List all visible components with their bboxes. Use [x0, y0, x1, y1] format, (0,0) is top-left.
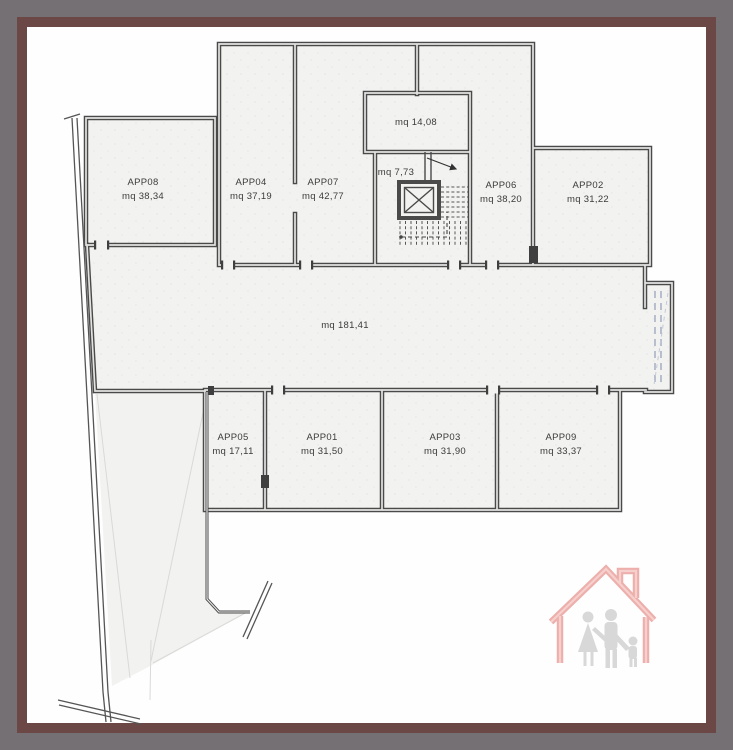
floorplan-drawing: APP08 mq 38,34 APP04 mq 37,19 APP07 mq 4… — [0, 0, 733, 750]
svg-text:mq 31,90: mq 31,90 — [424, 446, 466, 457]
pillar — [261, 475, 269, 488]
svg-text:mq 17,11: mq 17,11 — [212, 446, 253, 457]
svg-text:APP07: APP07 — [307, 177, 338, 188]
page: APP08 mq 38,34 APP04 mq 37,19 APP07 mq 4… — [0, 0, 733, 750]
floor-fills — [86, 44, 672, 700]
corridor-label: mq 181,41 — [321, 320, 369, 331]
pillar — [208, 386, 214, 395]
svg-text:APP01: APP01 — [306, 432, 337, 443]
svg-text:mq 31,50: mq 31,50 — [301, 446, 343, 457]
svg-text:APP04: APP04 — [235, 177, 266, 188]
stair-landing-label: mq 7,73 — [378, 167, 414, 178]
svg-text:mq 42,77: mq 42,77 — [302, 191, 344, 202]
svg-text:mq 37,19: mq 37,19 — [230, 191, 272, 202]
svg-text:mq 38,34: mq 38,34 — [122, 191, 164, 202]
house-icon — [551, 569, 654, 663]
svg-text:APP02: APP02 — [572, 180, 603, 191]
svg-text:APP05: APP05 — [217, 432, 248, 443]
agency-logo — [551, 569, 654, 668]
svg-text:mq 31,22: mq 31,22 — [567, 194, 609, 205]
svg-text:APP09: APP09 — [545, 432, 576, 443]
cellar-room-label: mq 14,08 — [395, 117, 437, 128]
svg-text:mq 33,37: mq 33,37 — [540, 446, 582, 457]
pillar — [529, 246, 538, 263]
svg-text:mq 38,20: mq 38,20 — [480, 194, 522, 205]
family-icon — [578, 609, 638, 668]
svg-text:APP03: APP03 — [429, 432, 460, 443]
svg-text:APP06: APP06 — [485, 180, 516, 191]
svg-text:APP08: APP08 — [127, 177, 158, 188]
